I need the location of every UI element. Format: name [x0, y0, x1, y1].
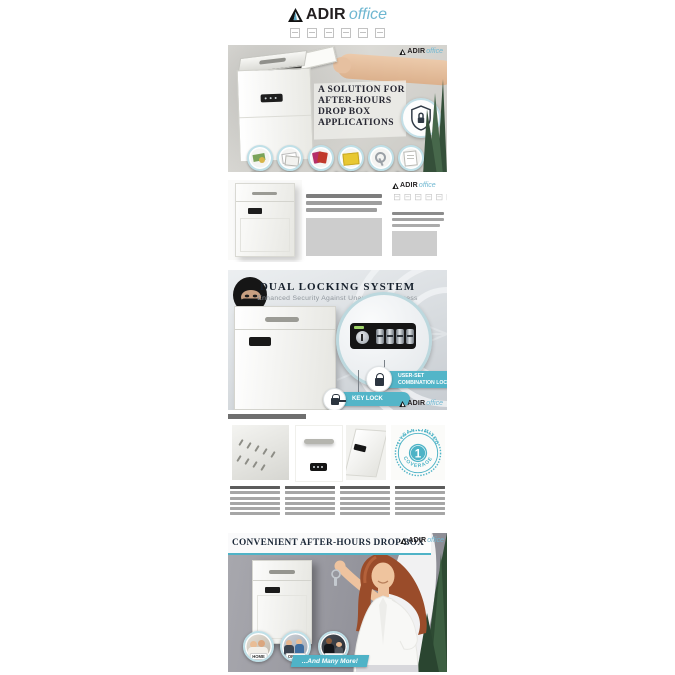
- specs-brand-logo: ADIRoffice: [392, 182, 436, 189]
- lock-panel: [248, 208, 262, 214]
- drop-box-product: [235, 183, 295, 257]
- combination-padlock-icon: [366, 366, 392, 392]
- drop-box-product: [234, 306, 336, 410]
- redacted-text-bar: [392, 212, 444, 215]
- redacted-text-bar: [306, 194, 382, 198]
- location-circle-home: HOME: [243, 631, 274, 662]
- lock-panel: [261, 94, 283, 103]
- adiroffice-triangle-icon: [400, 538, 407, 544]
- money-icon: [247, 145, 273, 171]
- hero-brand-logo: ADIRoffice: [399, 48, 443, 55]
- redacted-text-bar: [392, 224, 440, 227]
- svg-text:1: 1: [415, 448, 422, 460]
- open-door: [346, 429, 386, 478]
- category-icon: [436, 194, 442, 200]
- closeup-anti-theft-teeth: [232, 425, 289, 480]
- adiroffice-triangle-icon: [392, 183, 399, 189]
- image-placeholder: [392, 231, 437, 256]
- spec-table-column: [340, 486, 390, 518]
- category-icon: [426, 194, 432, 200]
- hero-headline: A SOLUTION FOR AFTER-HOURS DROP BOX APPL…: [318, 85, 405, 129]
- warranty-badge-tile: 1 1 YEAR LIMITED COVERAGE: [391, 425, 445, 480]
- convenient-panel: CONVENIENT AFTER-HOURS DROP BOX ADIRoffi…: [228, 533, 447, 672]
- category-icon-3: [324, 28, 334, 38]
- category-icon: [394, 194, 400, 200]
- adiroffice-triangle-icon: [399, 49, 406, 55]
- spec-table-column: [230, 486, 280, 518]
- key-lock-icon: [323, 388, 346, 410]
- adiroffice-triangle-icon: [288, 8, 303, 22]
- locking-subtitle: Enhanced Security Against Unauthorized A…: [228, 295, 447, 302]
- category-icon-2: [307, 28, 317, 38]
- item-documents: Documents: [394, 145, 428, 172]
- handle: [304, 439, 334, 444]
- and-many-more-ribbon: ...And Many More!: [291, 655, 370, 667]
- redacted-text-bar: [306, 201, 382, 205]
- image-placeholder: [306, 218, 382, 256]
- adiroffice-triangle-icon: [399, 401, 406, 407]
- item-letters: Letters: [273, 145, 307, 172]
- adiroffice-logo: ADIRoffice: [288, 6, 387, 24]
- item-money: Money: [243, 145, 277, 172]
- cards-icon: [308, 145, 334, 171]
- combo-dial: [406, 329, 414, 344]
- title-underline: [228, 553, 431, 555]
- category-icon-1: [290, 28, 300, 38]
- closeup-open-door: [346, 425, 386, 480]
- spec-table-column: [285, 486, 335, 518]
- combo-dial: [386, 329, 394, 344]
- combo-dial: [396, 329, 404, 344]
- keys-icon: [368, 145, 394, 171]
- redacted-section-title-bar: [228, 414, 306, 419]
- dual-locking-panel: DUAL LOCKING SYSTEM Enhanced Security Ag…: [228, 270, 447, 410]
- key-cylinder: [356, 331, 369, 344]
- closeup-handle-and-lock: [295, 425, 343, 482]
- redacted-text-bar: [306, 208, 377, 212]
- product-photo: [228, 180, 302, 260]
- item-cards: Cards: [304, 145, 338, 172]
- category-icons-row: [0, 28, 675, 38]
- documents-icon: [398, 145, 424, 171]
- category-icon-5: [358, 28, 368, 38]
- category-icon: [405, 194, 411, 200]
- category-icon-6: [375, 28, 385, 38]
- convenient-title: CONVENIENT AFTER-HOURS DROP BOX: [232, 538, 424, 548]
- brand-name-bold: ADIR: [306, 6, 346, 24]
- lock-panel: [310, 463, 327, 471]
- product-image-stack: ADIRoffice ADIRoffice A SOLUTION FOR AFT…: [0, 0, 675, 675]
- item-small-parcel: Small Parcel: [334, 145, 368, 172]
- lock-panel: [249, 337, 271, 346]
- specs-panel: ADIRoffice: [228, 178, 447, 262]
- letters-icon: [277, 145, 303, 171]
- item-keys: Keys: [364, 145, 398, 172]
- locking-brand-logo: ADIRoffice: [399, 400, 443, 407]
- brand-name-light: office: [349, 6, 387, 24]
- svg-text:1 YEAR LIMITED: 1 YEAR LIMITED: [396, 429, 440, 446]
- category-icons-row: [394, 194, 447, 200]
- combo-dial: [376, 329, 384, 344]
- small-parcel-icon: [338, 145, 364, 171]
- flap-handle: [259, 57, 286, 64]
- redacted-text-bar: [392, 218, 444, 221]
- convenient-brand-logo: ADIRoffice: [400, 537, 444, 544]
- locking-title: DUAL LOCKING SYSTEM: [228, 281, 447, 293]
- brand-header: ADIRoffice: [0, 6, 675, 24]
- category-icon-4: [341, 28, 351, 38]
- lock-panel: [265, 587, 280, 593]
- category-icon: [415, 194, 421, 200]
- hero-panel: ADIRoffice A SOLUTION FOR AFTER-HOURS DR…: [228, 45, 447, 172]
- lock-mechanism-closeup: [350, 323, 416, 349]
- spec-table-column: [395, 486, 445, 518]
- one-year-coverage-badge: 1 1 YEAR LIMITED COVERAGE: [394, 429, 442, 477]
